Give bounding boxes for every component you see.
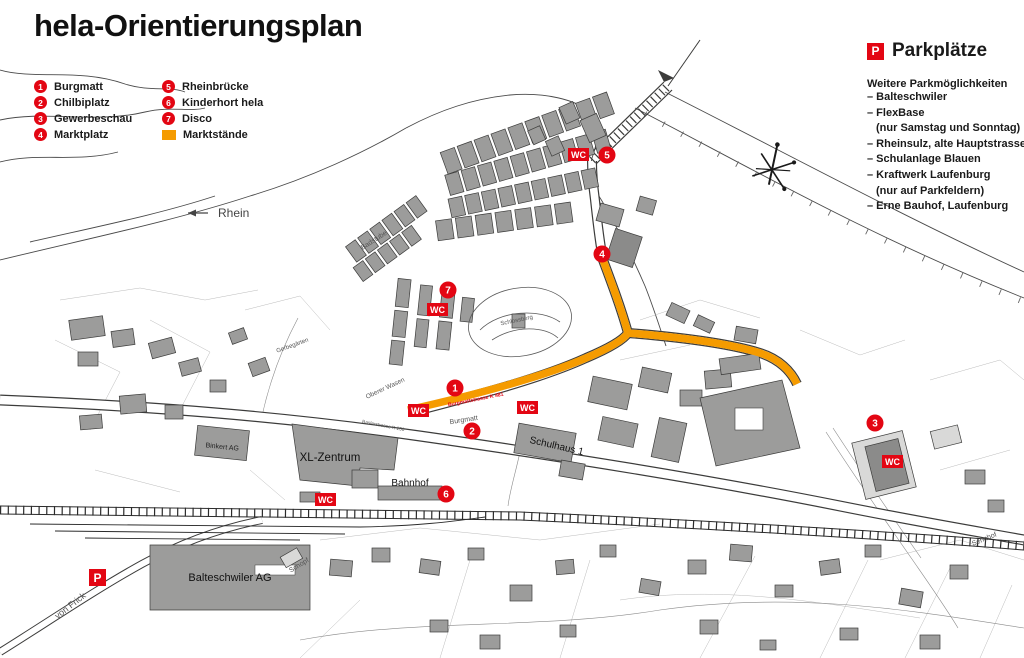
- wc-marker: WC: [315, 493, 336, 506]
- rhein-flow: Rhein: [188, 206, 249, 220]
- wc-marker: WC: [568, 148, 589, 161]
- parking-item: – Rheinsulz, alte Hauptstrasse: [867, 137, 1023, 153]
- parking-item: (nur auf Parkfeldern): [867, 184, 1023, 200]
- legend-label: Gewerbeschau: [54, 113, 132, 125]
- legend-label: Kinderhort hela: [182, 97, 263, 109]
- marker-6: 6: [438, 486, 455, 503]
- legend-item: 5Rheinbrücke: [162, 80, 249, 93]
- svg-text:Balteschwiler AG: Balteschwiler AG: [188, 572, 271, 584]
- marker-2: 2: [464, 423, 481, 440]
- legend-label: Burgmatt: [54, 81, 103, 93]
- svg-text:Bahnhof: Bahnhof: [391, 478, 428, 489]
- legend-label: Rheinbrücke: [182, 81, 249, 93]
- legend-label: Chilbiplatz: [54, 97, 110, 109]
- parking-item: – FlexBase: [867, 106, 1023, 122]
- svg-text:Oberer Wasen: Oberer Wasen: [365, 376, 406, 400]
- svg-text:4: 4: [599, 250, 605, 261]
- parking-subtitle: Weitere Parkmöglichkeiten: [867, 78, 1023, 90]
- parking-item: – Kraftwerk Laufenburg: [867, 168, 1023, 184]
- parking-panel: P Parkplätze Weitere Parkmöglichkeiten –…: [867, 40, 1023, 215]
- svg-text:P: P: [93, 571, 101, 585]
- wc-marker: WC: [408, 404, 429, 417]
- legend-number: 6: [162, 96, 175, 109]
- legend-item: 2Chilbiplatz: [34, 96, 110, 109]
- legend-label: Marktstände: [183, 129, 248, 141]
- legend-item: 4Marktplatz: [34, 128, 108, 141]
- svg-text:5: 5: [604, 151, 610, 162]
- legend-item: 3Gewerbeschau: [34, 112, 132, 125]
- legend-number: 5: [162, 80, 175, 93]
- legend-number: 1: [34, 80, 47, 93]
- svg-text:1: 1: [452, 384, 458, 395]
- svg-text:WC: WC: [571, 150, 586, 160]
- svg-text:3: 3: [872, 419, 878, 430]
- svg-text:Gerbegärten: Gerbegärten: [276, 337, 310, 354]
- svg-text:WC: WC: [885, 457, 900, 467]
- legend-item: 6Kinderhort hela: [162, 96, 263, 109]
- label-rhein: Rhein: [218, 206, 249, 220]
- legend-label: Marktplatz: [54, 129, 108, 141]
- svg-text:WC: WC: [520, 403, 535, 413]
- legend-item-swatch: Marktstände: [162, 128, 248, 141]
- parking-header: P Parkplätze: [867, 40, 1023, 62]
- market-stalls-swatch: [162, 130, 176, 140]
- parking-title: Parkplätze: [892, 40, 987, 62]
- svg-text:6: 6: [443, 490, 449, 501]
- parking-badge-icon: P: [867, 43, 884, 60]
- marker-3: 3: [867, 415, 884, 432]
- wc-marker: WC: [517, 401, 538, 414]
- svg-text:WC: WC: [318, 495, 333, 505]
- svg-text:2: 2: [469, 427, 475, 438]
- svg-text:von Frick: von Frick: [53, 590, 88, 621]
- parking-item: (nur Samstag und Sonntag): [867, 121, 1023, 137]
- wc-marker: WC: [427, 303, 448, 316]
- legend-number: 4: [34, 128, 47, 141]
- svg-text:WC: WC: [411, 406, 426, 416]
- page-title: hela-Orientierungsplan: [34, 8, 362, 44]
- legend-item: 1Burgmatt: [34, 80, 103, 93]
- legend-number: 3: [34, 112, 47, 125]
- town-buildings: [69, 302, 1004, 650]
- parking-item: – Erne Bauhof, Laufenburg: [867, 199, 1023, 215]
- marker-4: 4: [594, 246, 611, 263]
- parking-item: – Schulanlage Blauen: [867, 152, 1023, 168]
- marker-7: 7: [440, 282, 457, 299]
- legend-number: 7: [162, 112, 175, 125]
- svg-text:WC: WC: [430, 305, 445, 315]
- legend-label: Disco: [182, 113, 212, 125]
- svg-text:XL-Zentrum: XL-Zentrum: [300, 452, 361, 464]
- parking-item: – Balteschwiler: [867, 90, 1023, 106]
- marker-5: 5: [599, 147, 616, 164]
- marker-1: 1: [447, 380, 464, 397]
- svg-text:7: 7: [445, 286, 451, 297]
- legend-number: 2: [34, 96, 47, 109]
- parking-marker: P: [89, 569, 106, 586]
- compass-rose-icon: [751, 139, 799, 192]
- wc-marker: WC: [882, 455, 903, 468]
- legend-item: 7Disco: [162, 112, 212, 125]
